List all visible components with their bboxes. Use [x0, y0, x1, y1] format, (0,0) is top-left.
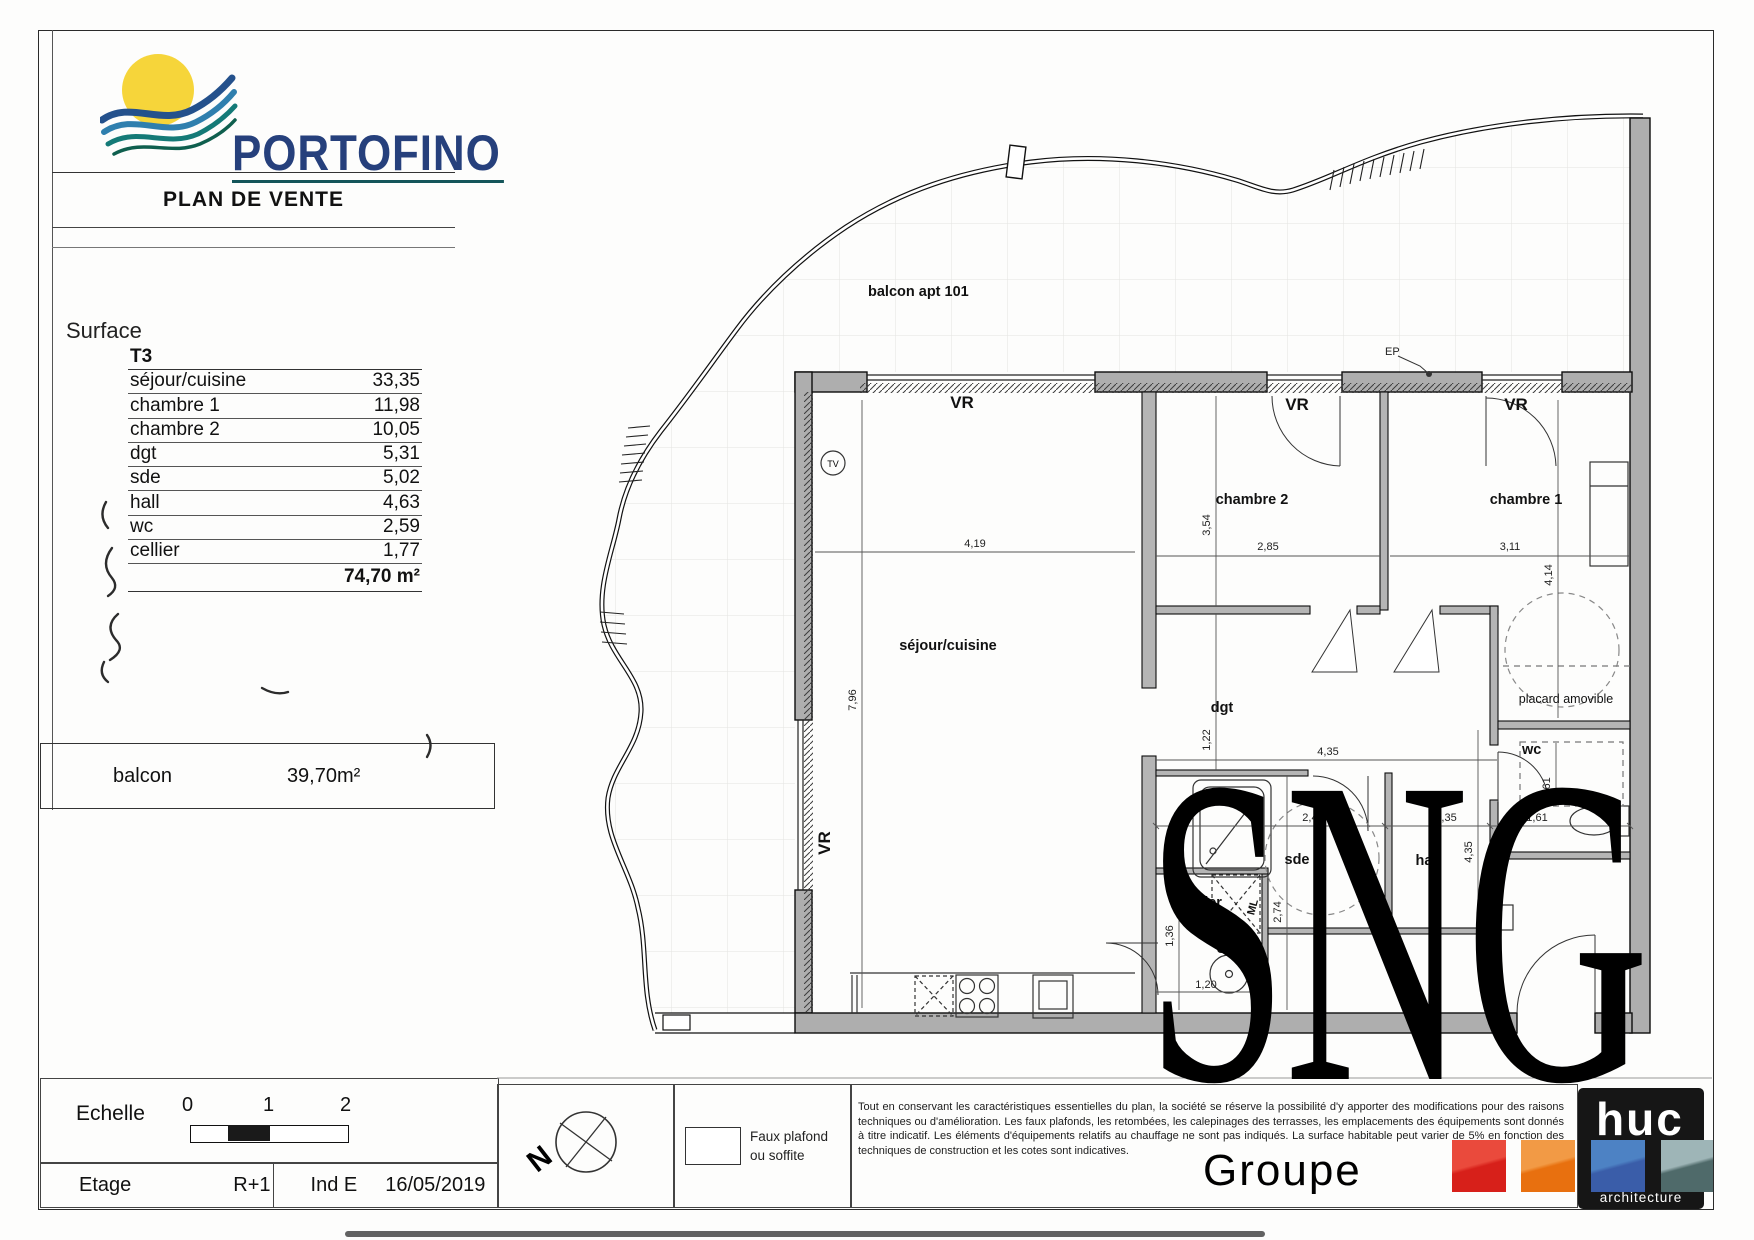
furniture [1590, 462, 1628, 566]
huc-orange-square-icon [1521, 1140, 1575, 1192]
dim-hall-h: 4,35 [1463, 841, 1475, 862]
vr-label: VR [1504, 395, 1528, 414]
dim-dgt-h: 1,22 [1201, 729, 1213, 750]
fixtures [821, 451, 1630, 1018]
tv-label: TV [827, 459, 839, 469]
room-label-dgt: dgt [1211, 700, 1234, 716]
huc-logo-subtitle: architecture [1582, 1190, 1700, 1205]
gtl-shaft [1496, 905, 1513, 930]
huc-blue-square-icon [1591, 1140, 1645, 1192]
ml-label: ML [1245, 898, 1261, 917]
room-label-chambre1: chambre 1 [1490, 492, 1563, 508]
room-label-placard: placard amovible [1519, 692, 1614, 706]
dim-cellier-w: 1,20 [1195, 979, 1216, 991]
vr-label: VR [950, 393, 974, 412]
toilet [1570, 807, 1618, 835]
huc-slate-square-icon [1661, 1140, 1713, 1192]
dim-cellier-h: 1,36 [1164, 925, 1176, 946]
wall-hatch [804, 392, 813, 1012]
room-label-wc: wc [1521, 742, 1541, 758]
balcony-label: balcon apt 101 [868, 284, 969, 300]
dim-sejour-w: 4,19 [964, 538, 985, 550]
cooktop [956, 975, 998, 1017]
dim-wc-w: 1,61 [1526, 812, 1547, 824]
dim-sde-h: 2,74 [1272, 901, 1284, 922]
ep-label: EP [1385, 346, 1400, 358]
dim-ch1-h: 4,14 [1543, 564, 1555, 585]
dim-ch2-w: 2,85 [1257, 541, 1278, 553]
dim-sejour-h: 7,96 [847, 689, 859, 710]
shower-tray [1193, 780, 1271, 877]
balcony-pillar [663, 1015, 690, 1030]
ce-label: CE 1 [1217, 944, 1241, 956]
handwritten-marks [102, 502, 431, 757]
scan-artifact [345, 1231, 1265, 1237]
wall-hatch [860, 383, 1632, 393]
dim-sde-w: 2,43 [1302, 812, 1323, 824]
dim-ch1-w: 3,11 [1500, 541, 1521, 553]
balcony-post [1006, 145, 1026, 179]
dim-wc-h: 1,61 [1541, 777, 1553, 798]
turning-circle [1505, 593, 1619, 707]
dim-hall-w: 1,35 [1435, 812, 1456, 824]
vr-label: VR [815, 831, 834, 855]
room-label-cellier: cellier [1180, 895, 1222, 911]
huc-logo-name: huc [1596, 1092, 1684, 1146]
room-label-chambre2: chambre 2 [1216, 492, 1289, 508]
vr-label: VR [1285, 395, 1309, 414]
plan-de-vente-sheet: PORTOFINO PLAN DE VENTE Surface T3 séjou… [0, 0, 1754, 1240]
room-label-hall: hall [1416, 853, 1441, 869]
huc-red-square-icon [1452, 1140, 1506, 1192]
room-label-sde: sde [1285, 852, 1310, 868]
gtl-label: GTL [1494, 886, 1505, 906]
floor-plan-drawing: balcon apt 101 VR VR VR VR EP TV séjour/… [0, 0, 1754, 1240]
dim-dgt-w: 4,35 [1317, 746, 1338, 758]
room-label-sejour: séjour/cuisine [899, 638, 997, 654]
dim-ch2-h: 3,54 [1201, 514, 1213, 535]
